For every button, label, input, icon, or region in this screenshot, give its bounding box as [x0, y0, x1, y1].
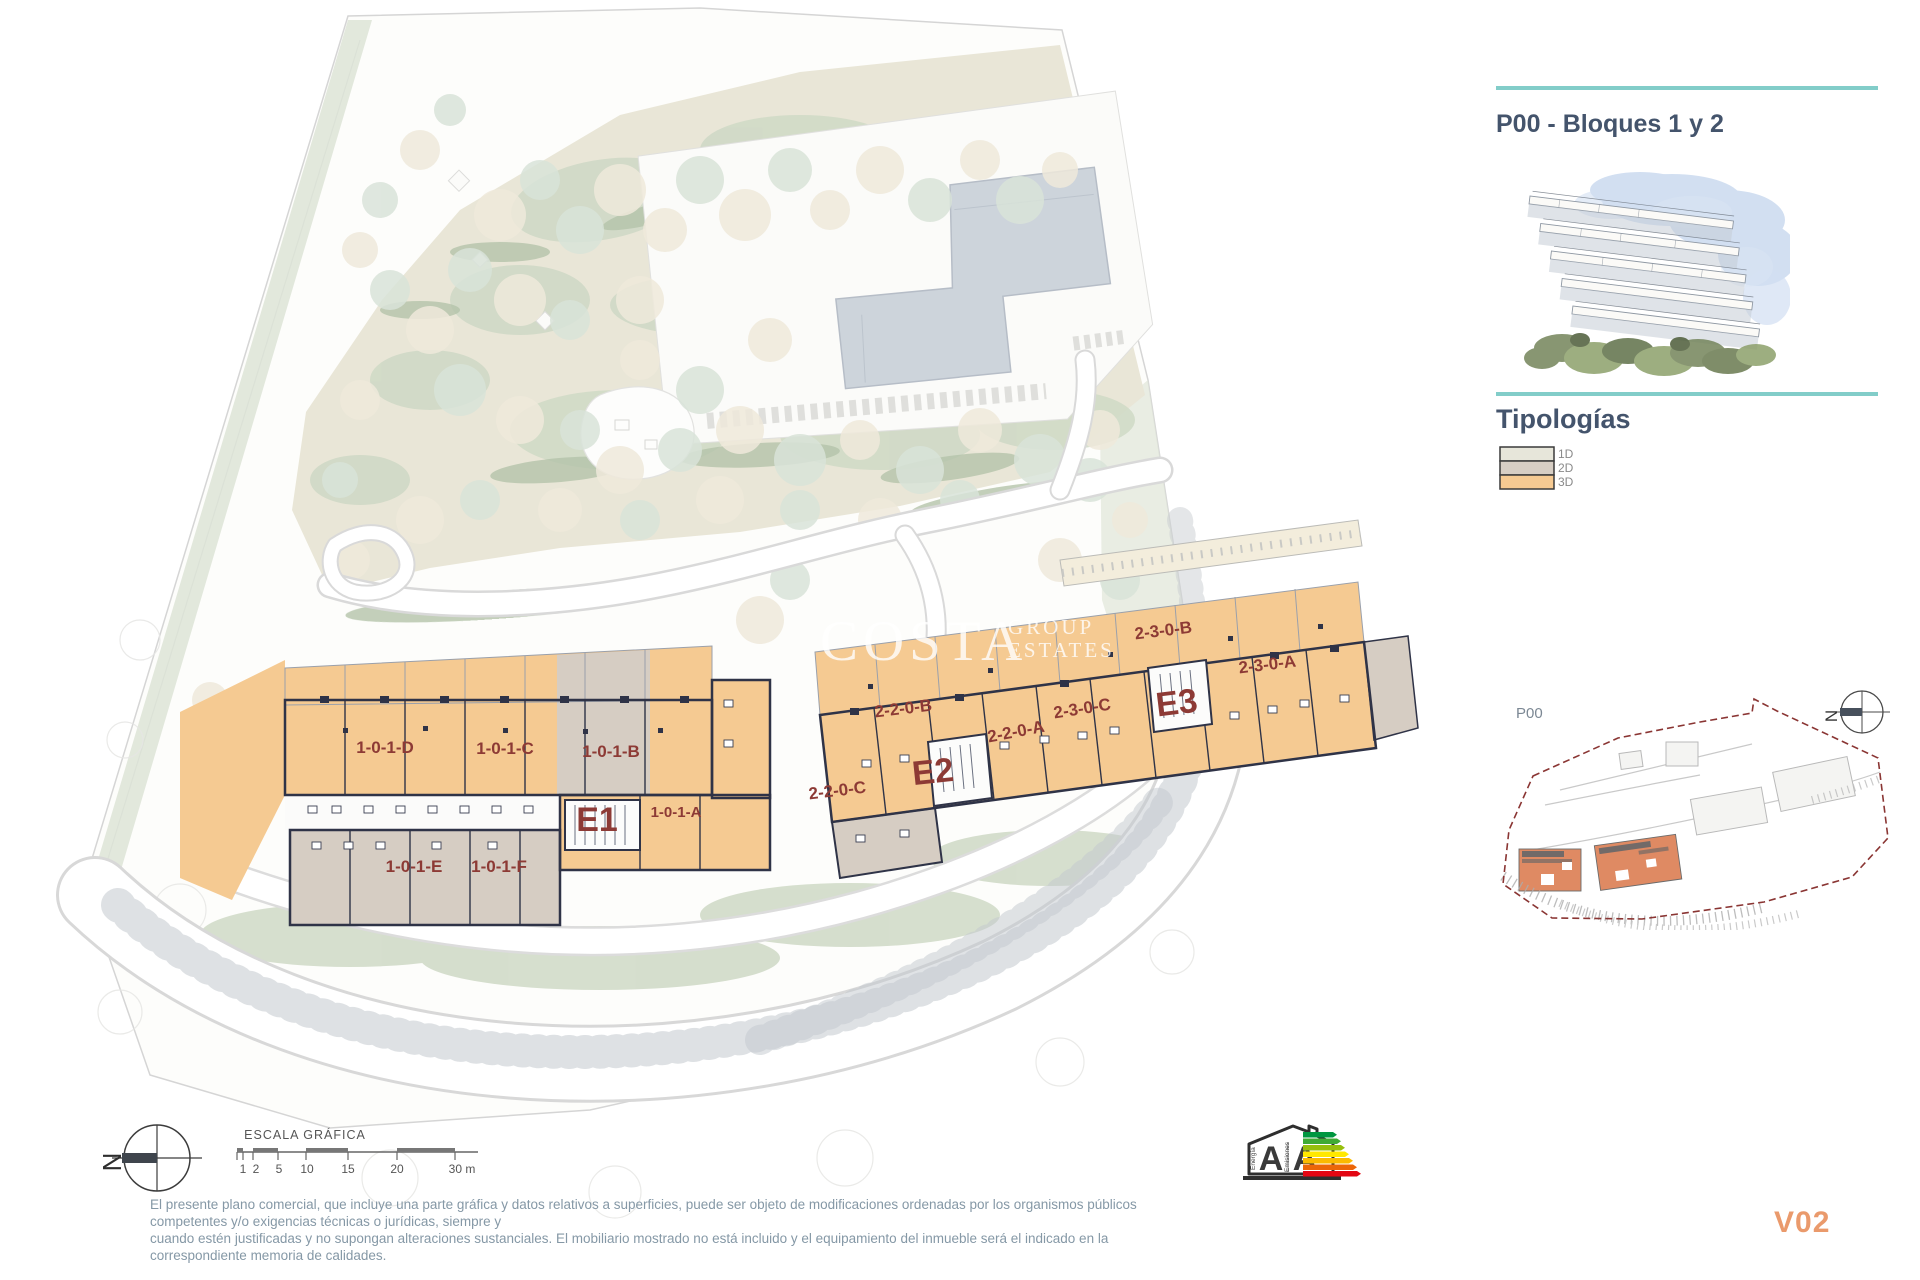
minimap-north-label: N [1822, 710, 1841, 722]
scale-tick: 15 [341, 1162, 355, 1176]
legend-label-3d: 3D [1558, 475, 1574, 489]
compass-north-label: N [97, 1153, 127, 1172]
unit-label: 1-0-1-A [651, 804, 702, 821]
page-title: P00 - Bloques 1 y 2 [1496, 110, 1724, 139]
unit-label: 1-0-1-F [471, 857, 527, 876]
version-label: V02 [1774, 1206, 1830, 1240]
energy-arrows [1303, 1132, 1361, 1177]
minimap-floor-label: P00 [1516, 705, 1543, 722]
watermark-word3: ESTATES [1008, 638, 1115, 662]
unit-label: 1-0-1-B [582, 742, 640, 761]
scale-tick: 1 [240, 1162, 247, 1176]
minimap-compass: N [1822, 691, 1890, 733]
tipologias-heading: Tipologías [1496, 404, 1631, 435]
energy-caption-left: Energía [1250, 1147, 1257, 1170]
disclaimer-line2: cuando estén justificadas y no supongan … [150, 1230, 1190, 1264]
watermark-word2: GROUP [1008, 615, 1094, 639]
scale-bar: ESCALA GRÁFICA 1 2 5 10 15 20 30 m [237, 1127, 478, 1176]
unit-label: 1-0-1-E [386, 857, 443, 876]
minimap-highlight-buildings [1519, 834, 1682, 891]
core-label: E2 [910, 751, 955, 793]
site-plan: COSTA GROUP ESTATES 1-0-1-D 1-0-1-C 1-0-… [0, 0, 1490, 1280]
middle-rule [1496, 392, 1878, 396]
legend-label-1d: 1D [1558, 447, 1574, 461]
top-rule [1496, 86, 1878, 90]
legend-swatch-3d [1500, 475, 1554, 489]
scale-tick: 5 [276, 1162, 283, 1176]
unit-label: 1-0-1-C [476, 739, 534, 758]
typology-legend: 1D 2D 3D [1496, 444, 1676, 500]
legal-disclaimer: El presente plano comercial, que incluye… [150, 1196, 1190, 1264]
legend-swatch-2d [1500, 461, 1554, 475]
watermark-word1: COSTA [820, 610, 1027, 673]
scale-tick: 30 m [449, 1162, 476, 1176]
key-plan-minimap: P00 N [1488, 664, 1918, 930]
energy-letter-left: A [1259, 1140, 1284, 1178]
scale-title: ESCALA GRÁFICA [244, 1127, 366, 1142]
disclaimer-line1: El presente plano comercial, que incluye… [150, 1196, 1190, 1230]
legend-swatch-1d [1500, 447, 1554, 461]
energy-label: A A Energía Emisiones [1243, 1126, 1361, 1180]
unit-label: 1-0-1-D [356, 738, 414, 757]
compass: N [97, 1125, 202, 1191]
scale-tick: 10 [300, 1162, 314, 1176]
core-label: E1 [576, 801, 618, 839]
minimap-buildings-other [1619, 742, 1855, 835]
legend-label-2d: 2D [1558, 461, 1574, 475]
energy-caption-right: Emisiones [1284, 1141, 1291, 1172]
scale-tick: 20 [390, 1162, 404, 1176]
plan-sheet: COSTA GROUP ESTATES 1-0-1-D 1-0-1-C 1-0-… [0, 0, 1920, 1280]
building-hero-image [1522, 162, 1790, 384]
scale-tick: 2 [253, 1162, 260, 1176]
core-label: E3 [1154, 682, 1200, 725]
